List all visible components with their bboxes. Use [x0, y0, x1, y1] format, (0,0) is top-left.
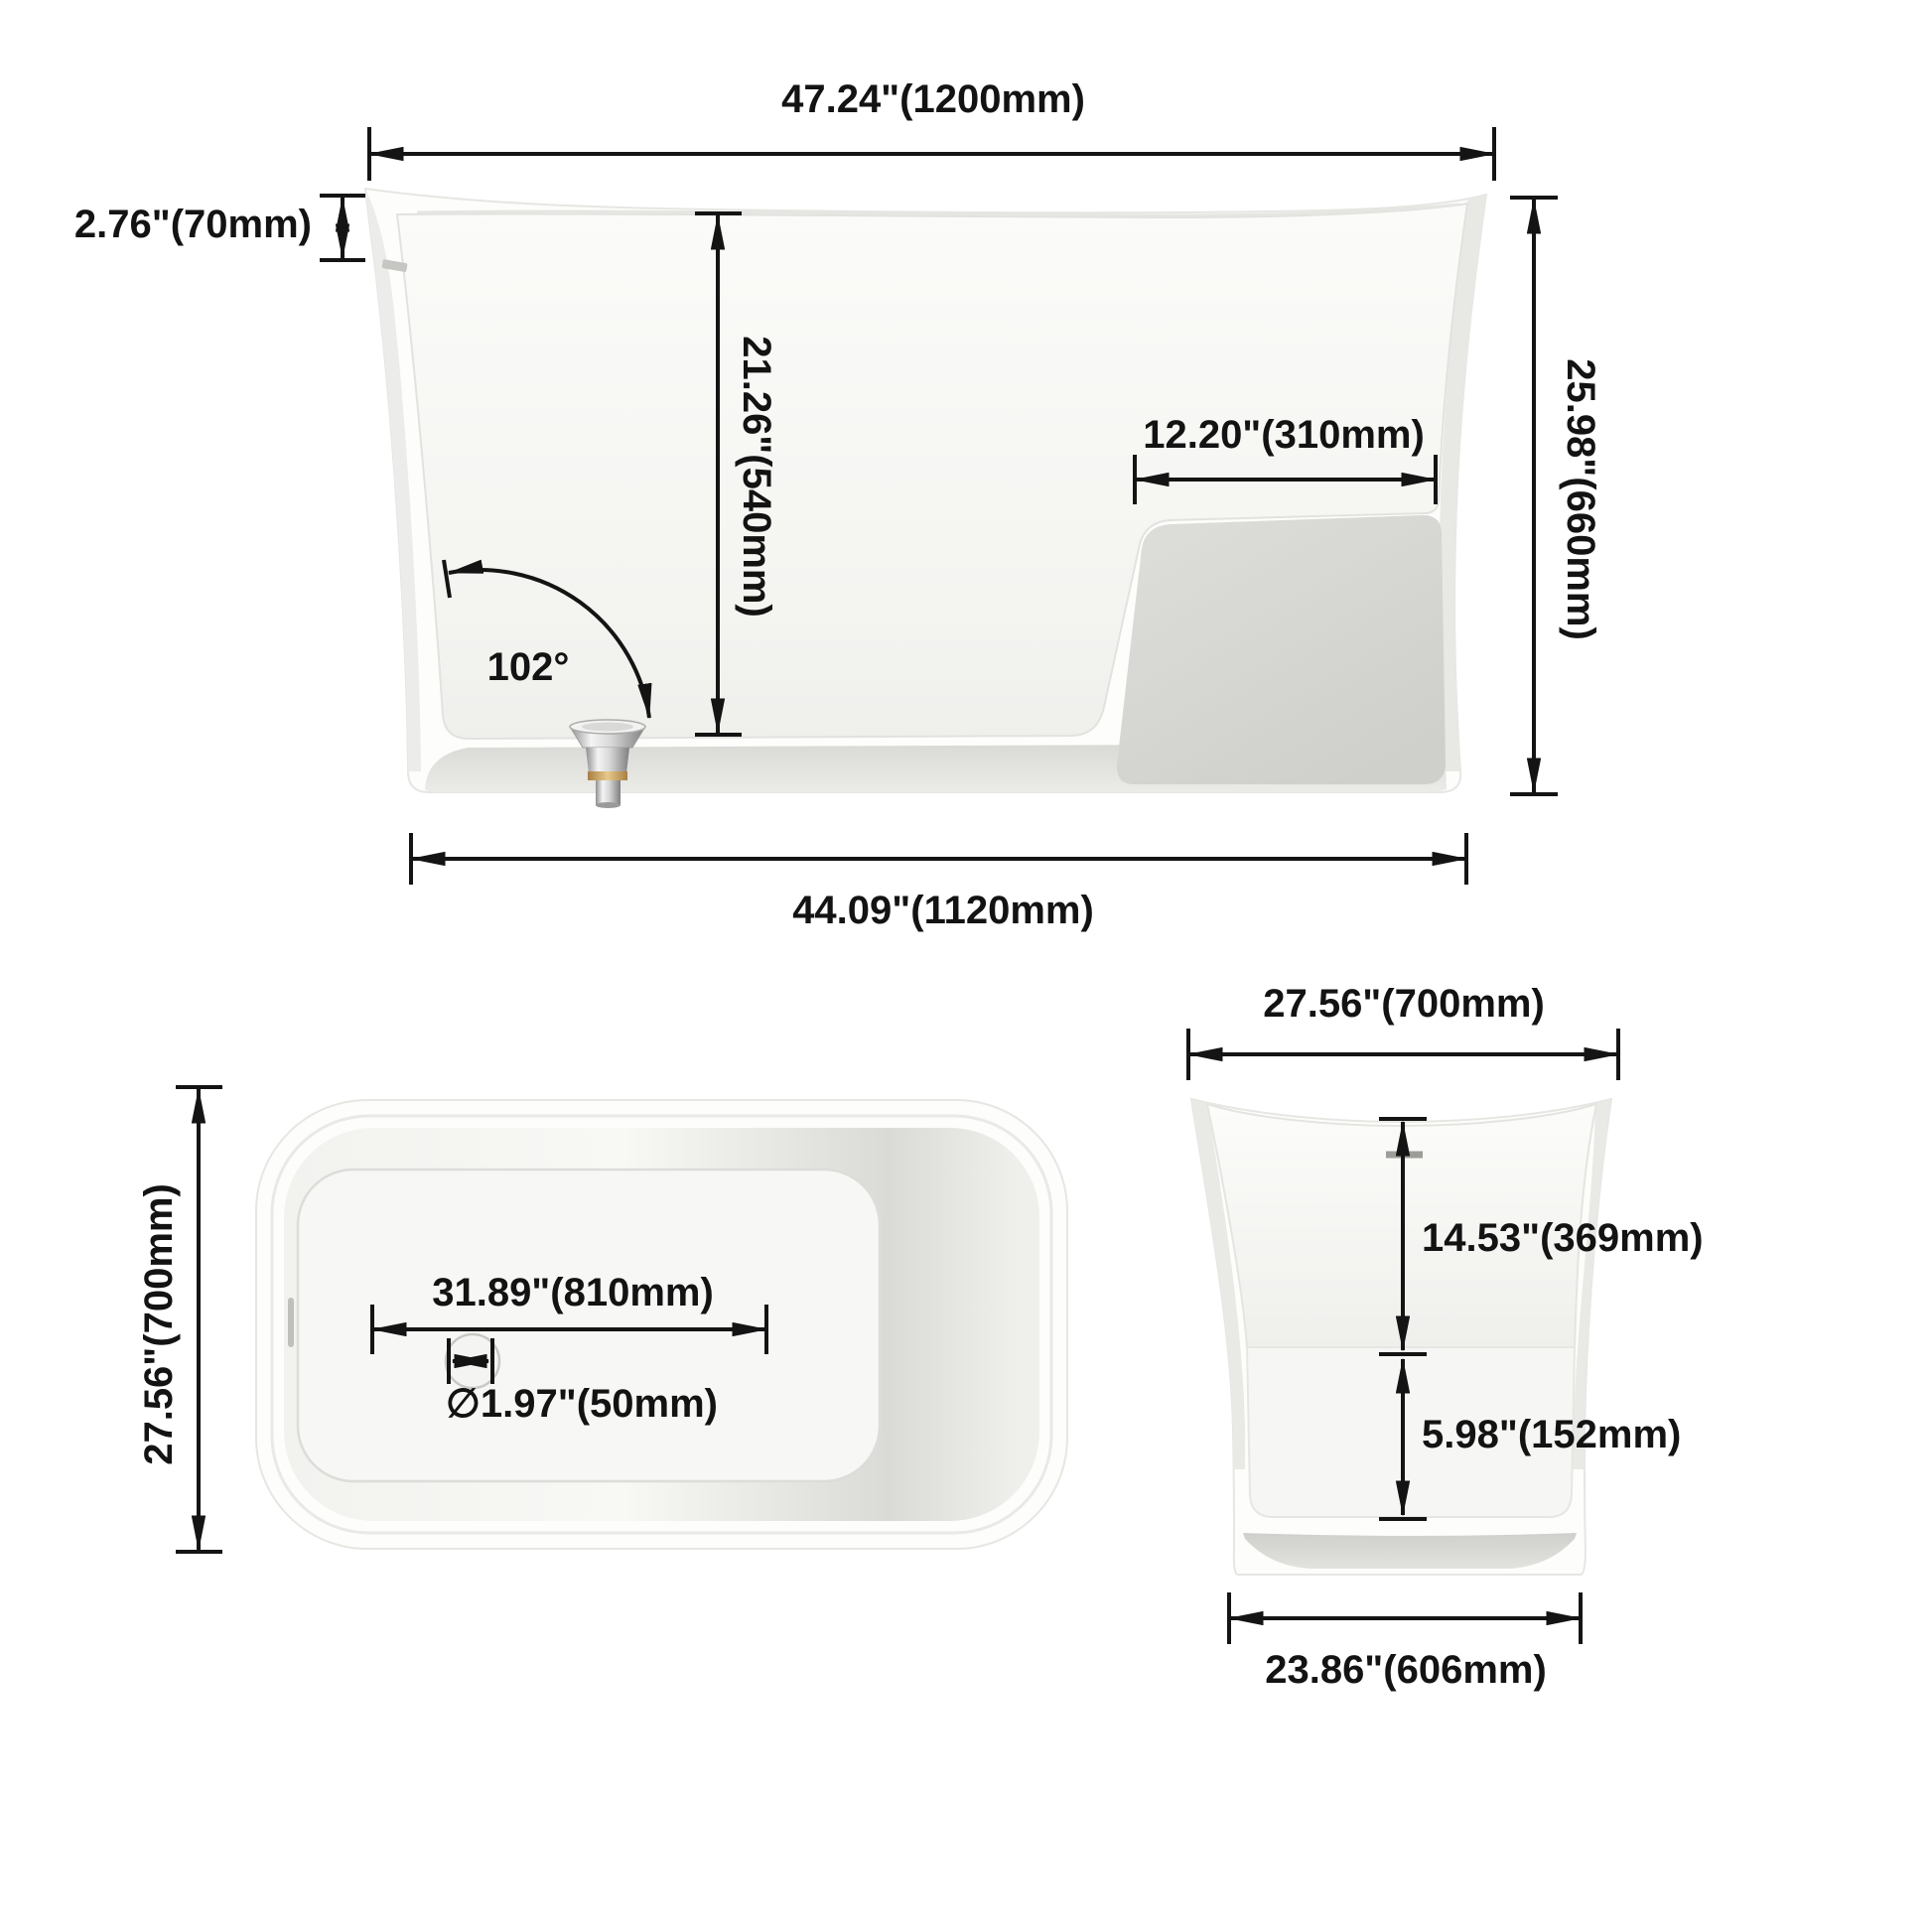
dim-label-side-overall-height: 25.98"(660mm) [1561, 358, 1600, 640]
side-under-seat-panel [1117, 515, 1446, 784]
dim-label-end-rim-to-seat: 14.53"(369mm) [1422, 1218, 1704, 1258]
dim-label-side-seat-length: 12.20"(310mm) [1143, 415, 1425, 455]
top-overflow-mark [288, 1298, 294, 1347]
dim-label-side-wall-angle: 102° [487, 647, 570, 687]
end-skirt-recess [1243, 1533, 1577, 1569]
bathtub-dimension-diagram: 47.24"(1200mm) 2.76"(70mm) 21.26"(540mm)… [0, 0, 1932, 1932]
dim-label-end-seat-to-floor: 5.98"(152mm) [1422, 1415, 1681, 1454]
dim-label-top-floor-length: 31.89"(810mm) [432, 1273, 714, 1312]
diagram-drawing [0, 0, 1932, 1932]
drain-body [586, 748, 629, 773]
side-view [320, 127, 1558, 885]
drain-cap [582, 723, 633, 732]
top-basin-floor [298, 1170, 880, 1481]
top-view [176, 1087, 1067, 1552]
end-view [1188, 1029, 1618, 1644]
dim-label-side-interior-depth: 21.26"(540mm) [737, 336, 776, 618]
dim-label-side-rim-drop: 2.76"(70mm) [74, 205, 312, 244]
dim-label-end-overall-width: 27.56"(700mm) [1263, 984, 1545, 1024]
drain-tailpipe [596, 780, 621, 805]
dim-label-top-overall-width: 27.56"(700mm) [139, 1183, 179, 1465]
drain-tailpipe-end [596, 802, 621, 808]
dim-label-side-base-length: 44.09"(1120mm) [792, 891, 1094, 930]
dim-label-top-drain-diameter: ∅1.97"(50mm) [446, 1384, 718, 1424]
dim-label-end-base-width: 23.86"(606mm) [1265, 1650, 1547, 1690]
drain-brass-ring [588, 771, 627, 780]
dim-label-side-overall-length: 47.24"(1200mm) [781, 79, 1085, 119]
